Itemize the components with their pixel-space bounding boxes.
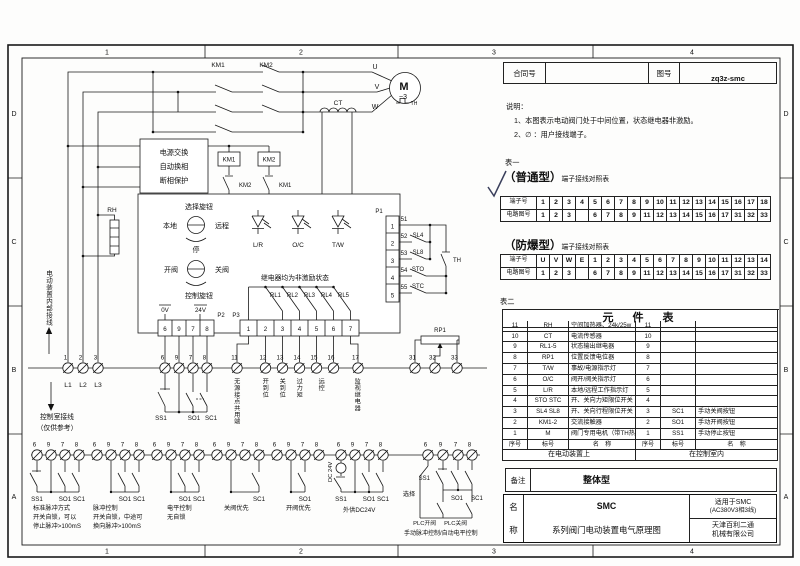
terminal-number: 1 [64,355,68,362]
terminal-number: 8 [203,355,207,362]
ss1-label: SS1 [155,415,167,422]
table1-caption: 表一 [505,158,519,168]
comp-no: 8 [503,353,528,364]
limit-switch-label: STO [412,267,425,273]
wire-number: 53 [401,251,408,257]
terminal-cell: 9 [693,255,706,268]
contactor-contacts [215,65,279,132]
p2-cell: 8 [205,326,209,333]
th-contact-label: TH [453,258,461,264]
terminal-number: 8 [195,442,199,449]
rl-relay-label: RL1 [270,293,282,299]
button-label: SO1 [299,496,312,503]
relay-note: 继电器均为非激励状态 [261,273,329,282]
company-cell: 适用于SMC (AC380V3相3线) 天津百利二通 机械有限公司 [690,495,776,542]
terminal-number: 7 [454,442,458,449]
terminal-cell: 15 [719,197,732,210]
terminal-cell: 2 [550,268,563,281]
limit-switch-label: STC [412,284,425,290]
name-label-top: 名 [509,501,518,513]
comp-name [696,332,778,343]
comp-name [696,342,778,353]
apply-line2: (AC380V3相3线) [710,507,756,514]
comp-name: 开、关向行程限位开关 [569,407,636,418]
terminal-cell: 14 [706,197,719,210]
drawing-no-label: 图号 [649,63,680,83]
down-arrowhead [48,404,54,411]
terminal-cell: 11 [719,255,732,268]
right-footer: 在控制室内 [636,450,778,461]
terminal-cell: 31 [732,268,745,281]
button-label: SO1 [179,496,192,503]
terminal-cell: 33 [758,268,771,281]
terminal-cell: 8 [615,210,628,223]
terminal-cell: V [550,255,563,268]
comp-tag [661,375,696,386]
comp-name: 手动关阀按钮 [696,407,778,418]
terminal-number: 9 [107,442,111,449]
terminal-number: 7 [365,442,369,449]
phase-terminal-label: L1 [64,382,72,389]
comp-name [696,353,778,364]
terminal-cell: 16 [732,197,745,210]
button-label: SO1 [59,496,72,503]
km2-interlock-label: KM2 [239,183,252,189]
group-caption: 无自锁 [167,513,186,521]
comp-name: 电流传感器 [569,332,636,343]
column-header: 名 称 [696,440,778,451]
terminal-cell: 7 [602,268,615,281]
drawing-title: SMC 系列阀门电动装置电气原理图 [524,495,690,542]
group-caption: 开阀优先 [286,504,311,512]
zone-number: 3 [492,549,496,556]
junction-dot [230,491,232,493]
comp-no: 4 [503,396,528,407]
button-label: SC1 [193,496,206,503]
group-caption: 开关自锁，可以 [33,513,76,521]
p3-cell: 4 [298,326,302,333]
p3-cell: 5 [315,326,319,333]
comp-tag [661,386,696,397]
g7-so1-label: SO1 [451,496,464,502]
comp-tag: RL1-5 [528,342,569,353]
zone-letter: D [783,111,788,118]
g6-so1-label: SO1 [363,496,376,503]
terminal-cell: 8 [615,268,628,281]
terminal-number: 7 [121,442,125,449]
comp-name: 事故/电源指示灯 [569,364,636,375]
zone-number: 1 [105,549,109,556]
applicability: 适用于SMC (AC380V3相3线) [690,495,776,519]
zone-letter: B [784,367,789,374]
zone-letter: A [12,494,17,501]
column-header: 标号 [661,440,696,451]
terminal-cell: 5 [641,255,654,268]
control-knob-title: 控制旋钮 [185,291,213,300]
so1-label: SO1 [188,415,201,422]
comp-name: 状态输出继电器 [569,342,636,353]
terminal-number: 8 [315,442,319,449]
terminal-number: 3 [94,355,98,362]
wire-number: 52 [401,234,408,240]
terminal-cell: 8 [680,255,693,268]
name-label-bottom: 称 [509,524,518,536]
terminal-number: 14 [294,355,301,362]
sig-label-torque: 过力矩 [295,378,301,398]
terminal-cell: 4 [576,197,589,210]
terminal-number: 6 [213,442,217,449]
button-label: SC1 [133,496,146,503]
notes-heading: 说明： [506,103,778,110]
p1-label: P1 [375,209,383,215]
p1-cell: 4 [391,275,395,282]
terminal-cell: 1 [537,197,550,210]
terminal-cell: E [576,255,589,268]
terminal-cell: 11 [641,268,654,281]
terminal-number: 7 [189,355,193,362]
button-label: SC1 [253,496,266,503]
comp-name: 阀开/阀关指示灯 [569,375,636,386]
terminal-cell [576,268,589,281]
terminal-number: 15 [311,355,318,362]
terminal-number: 33 [451,355,458,362]
comp-name [696,386,778,397]
default-buttons [158,374,207,412]
zone-number: 2 [299,50,303,57]
rp1-label: RP1 [434,328,446,334]
knob2-close-label: 关阀 [215,265,229,274]
terminal-cell: 18 [758,197,771,210]
comp-no: 2 [636,418,661,429]
comp-name: 位置反馈电位器 [569,353,636,364]
terminal-cell: 12 [732,255,745,268]
explosion-terminal-table: 端子号UVWE1234567891011121314电路图号1236789111… [500,254,771,280]
terminal-cell: W [563,255,576,268]
terminal-cell: 10 [654,197,667,210]
note-item: 2、∅ ：用户接线端子。 [514,131,778,138]
motor-label: M [399,81,408,93]
column-header: 序号 [503,440,528,451]
terminal-cell: 17 [719,210,732,223]
comp-no: 10 [503,332,528,343]
wire-number: 54 [401,268,408,274]
g7-sc1-label: SC1 [471,496,483,502]
comp-name: 空间加热器、24k/25w [569,321,636,332]
comp-tag: CT [528,332,569,343]
km1-label: KM1 [211,62,225,69]
comp-no: 3 [503,407,528,418]
terminal-number: 6 [337,442,341,449]
comp-tag: RH [528,321,569,332]
terminal-cell: 6 [602,197,615,210]
terminal-cell: 14 [680,268,693,281]
sig-label-open: 开到位 [261,378,267,398]
terminal-number: 6 [424,442,428,449]
motor-leads [303,72,392,112]
p3-cell: 7 [349,326,353,333]
terminal-cell: 7 [667,255,680,268]
comp-tag [661,342,696,353]
button-wiring [291,461,305,492]
terminal-cell: 9 [641,197,654,210]
terminal-number: 9 [175,355,179,362]
button-wiring [231,461,259,492]
led-lr-label: L/R [253,242,263,249]
terminal-cell: 3 [563,197,576,210]
terminal-cell: 2 [550,210,563,223]
knob1-local-label: 本地 [163,221,177,230]
comp-name [696,364,778,375]
terminal-number: 6 [153,442,157,449]
terminal-number: 7 [301,442,305,449]
terminal-number: 6 [33,442,37,449]
comp-tag [661,364,696,375]
terminal-cell: 9 [628,210,641,223]
comp-tag: RP1 [528,353,569,364]
terminal-number: 8 [468,442,472,449]
phase-w-label: W [372,104,379,111]
p3-cell: 1 [247,326,251,333]
terminal-cell: 6 [589,268,602,281]
zone-letter: A [784,494,789,501]
name-label: 名 称 [504,495,524,542]
knob1-remote-label: 远程 [215,221,229,230]
phase-u-label: U [372,64,377,71]
control-room-note: 控制室接线 [40,412,74,421]
terminal-cell: 13 [667,268,680,281]
comp-tag [661,332,696,343]
comp-tag: SO1 [661,418,696,429]
p2-label: P2 [217,313,225,319]
comp-tag [661,321,696,332]
sc1-label: SC1 [205,415,218,422]
explosion-type-heading: （防爆型）端子接线对照表 [504,236,609,254]
comp-name: 本地/远程工作指示灯 [569,386,636,397]
terminal-cell: 4 [628,255,641,268]
comp-name [696,321,778,332]
g6-ss1-label: SS1 [335,496,347,503]
dc24v-label: DC 24V [328,462,334,482]
left-footer: 在电动装置上 [503,450,636,461]
internal-wiring-note: 电动装置内部接线 [44,270,51,326]
km2-label: KM2 [259,62,273,69]
led-tw-label: T/W [332,242,345,249]
comp-tag: KM1-2 [528,418,569,429]
terminal-number: 8 [75,442,79,449]
zone-number: 4 [690,549,694,556]
apply-line1: 适用于SMC [715,499,752,507]
terminal-cell: 33 [758,210,771,223]
company-line1: 天津百利二通 [712,522,754,530]
rh-label: RH [107,207,117,214]
reference-arrows [49,332,51,406]
knob1-stop-label: 停 [193,245,200,254]
p2-0v-label: 0V [161,307,169,314]
phase-terminal-label: L3 [94,382,102,389]
terminal-cell [576,210,589,223]
rl-relay-label: RL4 [321,293,333,299]
dc-source-circle [336,463,346,473]
zone-number: 4 [690,50,694,57]
terminal-number: 2 [79,355,83,362]
terminal-number: 9 [47,442,51,449]
terminal-number: 9 [167,442,171,449]
comp-no: 1 [636,429,661,440]
notes: 说明： 1、本图表示电动阀门处于中间位置，状态继电器非激励。 2、∅ ：用户接线… [506,103,778,146]
terminal-number: 31 [409,355,416,362]
terminal-cell: 3 [615,255,628,268]
drawing-title-line1: SMC [597,501,617,511]
terminal-number: 32 [429,355,436,362]
terminal-cell: 32 [745,210,758,223]
terminal-number: 9 [351,442,355,449]
comp-tag: STO STC [528,396,569,407]
comp-tag: L/R [528,386,569,397]
p3-cell: 3 [281,326,285,333]
comp-name: 手动开阀按钮 [696,418,778,429]
circuit-lines [28,65,506,518]
ct-label: CT [334,100,343,107]
drawing-sheet: { "sheet": { "zone_numbers": ["1","2","3… [0,0,800,566]
terminal-cell: 8 [628,197,641,210]
limit-switch-label: SL8 [413,250,424,256]
button-wiring [171,461,199,492]
comp-name: 阀门专用电机（带TH热元件） [569,429,636,440]
comp-tag: SL4 SL8 [528,407,569,418]
terminal-number: 9 [287,442,291,449]
group-caption: 电平控制 [167,504,192,512]
terminal-cell: 11 [667,197,680,210]
group-caption: 开关自锁，中途可 [93,513,143,521]
component-table: 元 件 表11RH空间加热器、24k/25w1110CT电流传感器109RL1-… [502,309,779,461]
junction-dot [170,491,172,493]
terminal-number: 17 [352,355,359,362]
normal-terminal-table: 端子号123456789101112131415161718电路图号123678… [500,196,771,222]
comp-no: 5 [503,386,528,397]
comp-no: 1 [503,429,528,440]
g6-sc1-label: SC1 [377,496,390,503]
plc-open-label: PLC开阀 [413,519,436,527]
comp-tag: M [528,429,569,440]
terminal-cell: U [537,255,550,268]
terminal-cell: 1 [537,268,550,281]
remark-label: 备注 [506,469,531,491]
terminal-cell: 13 [667,210,680,223]
comp-no: 6 [636,375,661,386]
terminal-cell: 10 [706,255,719,268]
zone-letter: C [11,239,16,246]
comp-no: 7 [503,364,528,375]
terminal-cell: 6 [654,255,667,268]
explosion-type-subtitle: 端子接线对照表 [562,244,610,251]
terminal-number: 7 [61,442,65,449]
contract-value [546,63,649,83]
terminal-number: 6 [93,442,97,449]
terminal-cell: 1 [589,255,602,268]
terminal-number: 11 [231,355,238,362]
terminal-cell: 3 [563,268,576,281]
group-caption: 关阀优先 [224,504,249,512]
terminal-number: 7 [241,442,245,449]
terminal-number: 6 [273,442,277,449]
motor-th-label: TH [411,101,418,107]
column-header: 序号 [636,440,661,451]
rl-relay-label: RL3 [304,293,316,299]
terminal-cell: 1 [537,210,550,223]
terminal-number: 9 [227,442,231,449]
zone-letter: C [783,239,788,246]
terminal-cell: 5 [589,197,602,210]
phase-terminal-label: L2 [79,382,87,389]
terminal-cell: 11 [641,210,654,223]
p1-cell: 3 [391,258,395,265]
comp-no: 2 [503,418,528,429]
zone-number: 3 [492,50,496,57]
terminal-cell: 3 [563,210,576,223]
rl-relay-label: RL5 [338,293,350,299]
comp-no: 8 [636,353,661,364]
comp-no: 9 [503,342,528,353]
phase-v-label: V [375,84,380,91]
remark-block: 备注 整体型 [505,468,777,492]
sig-label-remote: 远控 [317,378,323,391]
comp-no: 6 [503,375,528,386]
protection-text-1: 电源交换 [160,148,189,157]
button-label: SC1 [73,496,86,503]
terminal-cell: 7 [602,210,615,223]
explosion-type-title: （防爆型） [504,240,562,252]
terminal-cell: 2 [550,197,563,210]
p1-cell: 2 [391,241,395,248]
button-label: SS1 [31,496,43,503]
terminal-cell: 6 [589,210,602,223]
drawing-no-cell: zq3z-smc [680,63,776,83]
limit-switch-label: SL4 [413,233,424,239]
comp-tag: SS1 [661,429,696,440]
p2-cell: 7 [191,326,195,333]
drawing-title-line2: 系列阀门电动装置电气原理图 [552,524,661,536]
group-caption: 脉冲控制 [93,504,118,512]
terminal-cell: 32 [745,268,758,281]
p1-cell: 5 [391,292,395,299]
group-caption: 换向脉冲>100mS [93,522,141,530]
wire-number: 55 [401,285,408,291]
remark-value: 整体型 [531,469,776,491]
p3-cell: 6 [332,326,336,333]
junction-dot [110,491,112,493]
sig-label-monitor: 监视继电器 [353,378,359,412]
terminal-cell: 13 [745,255,758,268]
km1-interlock-label: KM1 [279,183,292,189]
terminal-cell: 17 [719,268,732,281]
terminal-cell: 13 [693,197,706,210]
protection-text-2: 自动换相 [160,162,189,171]
terminal-cell: 7 [615,197,628,210]
terminal-cell: 17 [745,197,758,210]
zone-number: 1 [105,50,109,57]
drawing-no-value: zq3z-smc [711,73,745,83]
junction-dot [290,491,292,493]
terminal-cell: 2 [602,255,615,268]
zone-letter: B [12,367,17,374]
comp-name: 开、关向力矩限位开关 [569,396,636,407]
terminal-number: 8 [255,442,259,449]
km1-coil-label: KM1 [223,157,236,164]
rp1-pot [421,336,459,344]
protection-stubs [68,146,140,187]
p2-24v-label: 24V [195,307,207,314]
row-label: 电路图号 [501,268,537,281]
